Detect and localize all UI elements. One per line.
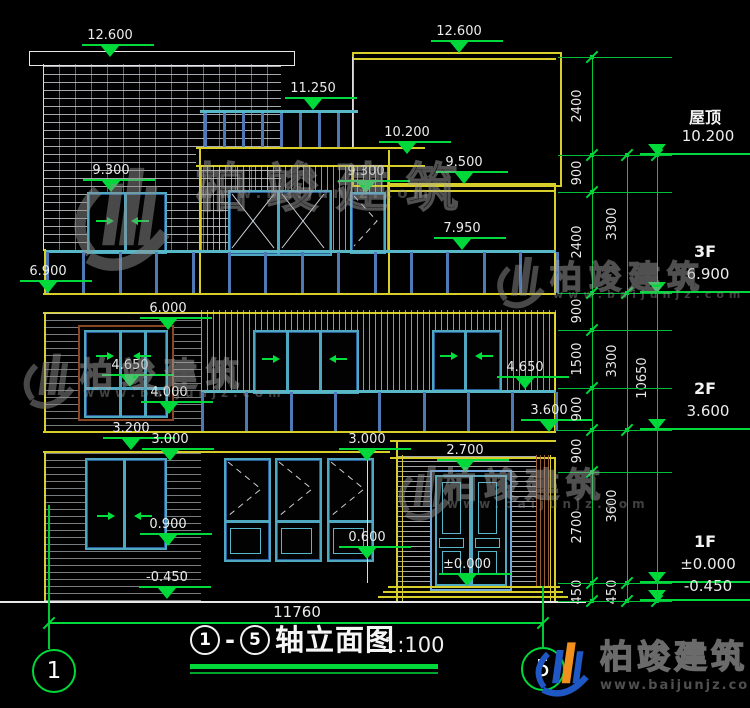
watermark-logo-icon (492, 248, 548, 312)
elevation-marker-triangle (159, 535, 177, 546)
railing-post (228, 252, 231, 293)
elevation-marker-label: 11.250 (275, 82, 351, 95)
window-lower-panel (281, 528, 312, 554)
watermark-url: www.baijunjz.com (83, 386, 286, 400)
elevation-marker-label: 3.000 (132, 433, 208, 446)
elevation-marker: ±0.000 (429, 558, 505, 586)
corner-line-1f (367, 449, 368, 583)
elevation-marker: -0.450 (129, 571, 205, 599)
elevation-marker-triangle (101, 46, 119, 57)
sash-arrow-icon (97, 512, 115, 520)
level-extension-line (558, 430, 672, 431)
title-underline-thin (190, 672, 438, 674)
watermark-url: www.baijunjz.com (200, 184, 433, 202)
axis-bubble-1: 1 (32, 649, 76, 693)
watermark-logo-icon (64, 150, 176, 279)
floor-label: 屋顶 (660, 104, 750, 128)
elevation-marker-triangle (39, 282, 57, 293)
overall-dim-label: 11760 (252, 603, 342, 621)
elevation-marker-triangle (304, 99, 322, 110)
elevation-marker-triangle (450, 42, 468, 53)
sash-arrow-tail (336, 358, 347, 360)
floor-elevation: -0.450 (660, 577, 750, 595)
sash-arrow-icon (476, 352, 494, 360)
sash-arrow-head (329, 355, 336, 363)
stair-tower-edge-line (352, 57, 353, 149)
dim-value: 450 (570, 547, 586, 637)
elevation-marker: 6.000 (130, 302, 206, 330)
title-dash: - (225, 626, 235, 654)
railing-post (204, 113, 207, 147)
elevation-marker-triangle (453, 239, 471, 250)
window-mullion (464, 332, 467, 390)
sash-arrow-icon (330, 355, 348, 363)
axis-line-1 (48, 505, 50, 649)
sash-arrow-tail (97, 515, 108, 517)
railing-post (318, 113, 321, 147)
brand-logo: 柏竣建筑 www.baijunjz.com (530, 630, 750, 702)
floor-label: 1F (660, 532, 750, 551)
entry-step-3 (378, 596, 568, 598)
sash-arrow-head (108, 512, 115, 520)
elevation-marker-triangle (158, 588, 176, 599)
watermark-url: www.baijunjz.com (447, 497, 650, 511)
elevation-marker-triangle (159, 319, 177, 330)
door-rail (439, 538, 464, 548)
sash-arrow-head (475, 352, 482, 360)
elevation-marker-label: 4.650 (487, 361, 563, 374)
elevation-marker-label: 3.000 (329, 433, 405, 446)
elevation-marker: 0.600 (329, 531, 405, 559)
floor-elevation: ±0.000 (660, 555, 750, 573)
elevation-marker: 0.900 (130, 518, 206, 546)
railing-post (337, 252, 340, 293)
dim-chain-line (657, 155, 658, 601)
floor-elevation: 10.200 (660, 127, 750, 145)
sash-arrow-head (451, 352, 458, 360)
watermark-logo-icon (18, 344, 78, 413)
window-1f-middle-1 (224, 458, 271, 562)
elevation-marker: 4.650 (487, 361, 563, 389)
sash-arrow-tail (440, 355, 451, 357)
railing-post (261, 113, 264, 147)
elevation-marker-label: 12.600 (421, 25, 497, 38)
sash-arrow-head (273, 355, 280, 363)
railing-post (423, 392, 426, 431)
elevation-marker: 3.000 (132, 433, 208, 461)
elevation-marker: 7.950 (424, 222, 500, 250)
door-rail (475, 538, 500, 548)
level-extension-line (558, 155, 672, 156)
dim-chain-line (627, 155, 628, 601)
railing-post (337, 113, 340, 147)
window-rail (277, 520, 320, 523)
railing-post (299, 113, 302, 147)
dim-value: 10650 (635, 333, 651, 423)
railing-post (280, 113, 283, 147)
sash-arrow-tail (482, 355, 493, 357)
elevation-marker-triangle (516, 378, 534, 389)
brand-url: www.baijunjz.com (600, 678, 750, 693)
sash-arrow-tail (262, 358, 273, 360)
sash-arrow-icon (135, 512, 153, 520)
entry-step-1 (388, 586, 560, 588)
brand-logo-icon (530, 630, 594, 702)
railing-post (264, 252, 267, 293)
elevation-marker-label: 12.600 (72, 29, 148, 42)
level-extension-line (558, 388, 672, 389)
railing-post (290, 392, 293, 431)
window-lower-panel (230, 528, 261, 554)
sash-arrow-head (134, 512, 141, 520)
left-tower-edge-line (43, 64, 44, 251)
drawing-title: 1 - 5 轴立面图 (190, 624, 395, 656)
watermark-logo (18, 344, 78, 417)
railing-post (374, 252, 377, 293)
window-rail (329, 520, 372, 523)
title-text: 轴立面图 (275, 624, 395, 656)
watermark-logo (492, 248, 548, 316)
drawing-scale: 1:100 (384, 633, 445, 657)
title-underline-thick (190, 664, 438, 669)
sash-arrow-tail (141, 515, 152, 517)
railing-post (301, 252, 304, 293)
railing-post (192, 252, 195, 293)
elevation-marker: 12.600 (72, 29, 148, 57)
level-extension-line (558, 583, 672, 584)
elevation-marker-label: 0.600 (329, 531, 405, 544)
sash-arrow-icon (440, 352, 458, 360)
stair-tower-slab-line (354, 58, 556, 60)
level-extension-line (558, 601, 672, 602)
railing-post (334, 392, 337, 431)
floor-label: 2F (660, 379, 750, 398)
railing-post (378, 392, 381, 431)
level-extension-line (558, 192, 672, 193)
elevation-marker-triangle (358, 450, 376, 461)
watermark-url: www.baijunjz.com (553, 288, 745, 301)
elevation-marker-label: ±0.000 (429, 558, 505, 571)
watermark-logo (64, 150, 176, 283)
elevation-marker-triangle (358, 548, 376, 559)
sash-arrow-icon (262, 355, 280, 363)
window-mullion (286, 332, 289, 392)
elevation-marker-label: 6.000 (130, 302, 206, 315)
elevation-marker-triangle (540, 421, 558, 432)
railing-post (446, 252, 449, 293)
railing-post (410, 252, 413, 293)
elevation-marker-label: -0.450 (129, 571, 205, 584)
elevation-marker-triangle (160, 403, 178, 414)
elevation-drawing-canvas: 11760 1 5 1 - 5 轴立面图 1:100 柏竣建筑 www.baij… (0, 0, 750, 708)
railing-post (223, 113, 226, 147)
railing-post (242, 113, 245, 147)
elevation-marker-label: 10.200 (369, 126, 445, 139)
elevation-marker: 11.250 (275, 82, 351, 110)
window-mullion (123, 460, 126, 548)
level-extension-line (558, 57, 672, 58)
title-axis-circle-start: 1 (190, 625, 220, 655)
window-1f-middle-2 (275, 458, 322, 562)
title-axis-circle-end: 5 (240, 625, 270, 655)
elevation-marker-label: 7.950 (424, 222, 500, 235)
elevation-marker-triangle (161, 450, 179, 461)
window-mullion (319, 332, 322, 392)
elevation-marker: 12.600 (421, 25, 497, 53)
window-rail (226, 520, 269, 523)
level-extension-line (558, 330, 672, 331)
railing-post (467, 392, 470, 431)
elevation-marker-triangle (458, 575, 476, 586)
railing-post (483, 252, 486, 293)
dim-value: 450 (605, 547, 621, 637)
entry-step-2 (383, 591, 563, 593)
floor-elevation: 3.600 (660, 402, 750, 420)
brand-name: 柏竣建筑 (600, 630, 750, 678)
